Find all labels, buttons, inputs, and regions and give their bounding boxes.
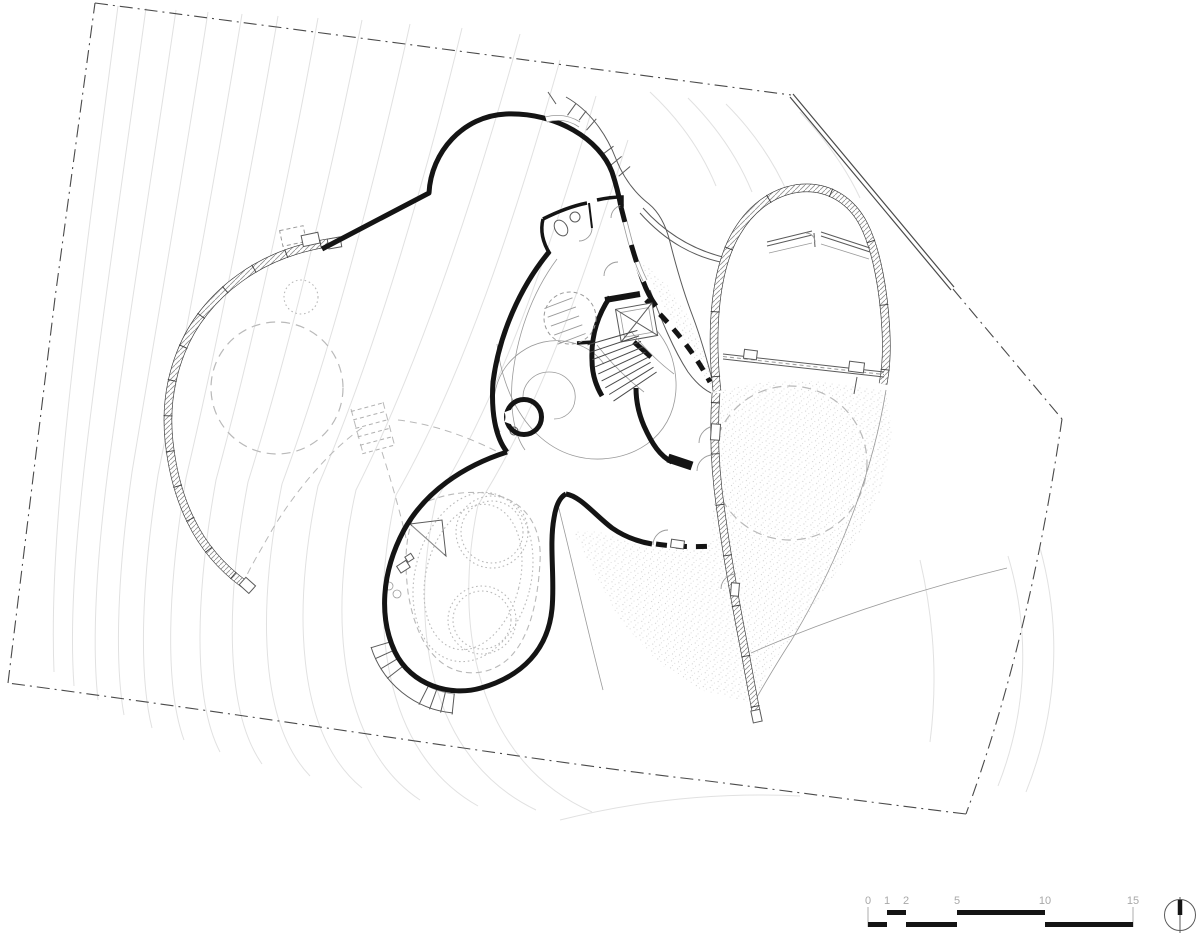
contour-line [726,104,788,194]
entry-walkway-edge [643,208,727,258]
corridor-edge [512,259,557,450]
bathroom-pod [542,197,622,254]
garden-stair-treads-ticks [351,403,393,454]
elevator-shaft [615,303,657,342]
contour-line [267,24,410,776]
toilet [551,218,570,239]
stair-core [544,292,674,401]
site-plan-drawing: 0 1 2 5 10 15 [0,0,1200,942]
scale-segment [957,910,1045,915]
pod-partition [589,203,592,228]
contour-line [688,98,752,192]
spiral-column-gap [508,411,509,423]
door-leaf [730,583,739,597]
scale-segment [868,922,887,927]
scale-label: 2 [903,895,909,907]
sink [570,212,580,222]
contour-line [425,96,596,810]
scale-segment [1045,922,1133,927]
boundary-northeast [953,289,1062,419]
tick-line [544,298,572,309]
contour-line [200,18,318,752]
tick-line [355,420,386,428]
skylight-dashed-circle [544,292,596,344]
skylight-hatch-ticks [544,298,585,344]
boundary-west [8,3,95,683]
tick-line [351,403,382,411]
north-arrow-icon [1165,897,1196,933]
pool-circle-dotted [453,591,511,649]
tree-small-dotted [284,280,318,314]
scale-label: 1 [884,895,890,907]
boundary-north [95,3,791,95]
glass-wall-dashed-south [656,544,714,547]
tick-line [609,367,653,394]
courtyard-balustrade [769,243,812,253]
contour-line [920,560,934,742]
scale-label: 10 [1039,895,1051,907]
pool-equipment [393,590,401,598]
core-top-wall [605,294,640,300]
tick-line [360,437,391,445]
tick-line [567,103,576,115]
pod-wall [542,219,550,254]
courtyard-wall-upper-right [821,236,870,252]
pool-lobe-outline [385,452,566,691]
tick-line [711,403,720,404]
tick-line [353,412,384,420]
boundary-east [966,419,1062,814]
courtyard-wall-upper-right [821,232,870,248]
tick-line [548,307,576,317]
fan-stair-outer-arc [371,647,453,713]
scale-label: 15 [1127,895,1139,907]
entry-walkway-edge [640,213,725,263]
door-swing-arc [604,262,618,276]
pool-circle-dotted [448,586,516,654]
wall-end-cap [751,709,762,723]
tick-line [587,119,597,130]
scale-label: 5 [954,895,960,907]
door-swing-arc [697,455,713,471]
contour-line [650,92,716,186]
courtyard-interior [723,231,884,394]
scale-segment [906,922,957,927]
door-leaf [671,539,685,549]
retaining-wall-west [164,226,342,594]
scale-segment [887,910,906,915]
garden-stair-treads [366,406,378,451]
garden-path-dashed [398,420,498,452]
contour-line [53,6,118,672]
curved-wall-east [636,388,672,462]
tick-line [590,336,639,352]
retaining-wall-west-band-ticks [164,240,322,579]
pool-inner-dotted [409,494,536,660]
contour-line [143,14,242,728]
contour-line [95,10,176,700]
door-swing-arc [579,228,592,241]
garden-path-dashed [382,452,406,538]
contour-line [469,140,628,812]
tick-line [554,325,582,335]
scale-label: 0 [865,895,871,907]
contour-line [1026,548,1054,792]
scale-bar: 0 1 2 5 10 15 [865,895,1139,927]
contour-line [171,16,278,740]
contour-line [118,12,208,715]
boundary-south [8,683,966,814]
contour-lines [53,6,1054,820]
wall-foot [668,458,692,466]
site-plan-sheet: 0 1 2 5 10 15 [0,0,1200,942]
tick-line [362,446,393,454]
door-leaf [710,424,720,441]
boundary-road-double-line [790,97,951,290]
straight-wall-and-upper-lobe [322,114,621,249]
pool-circle-dotted [456,496,528,568]
tree-canopy-dashed [211,322,343,454]
contour-line [72,8,146,686]
courtyard-balustrade [821,244,869,259]
pool-terrace [385,480,550,675]
ramp-slope-line [412,526,444,554]
wall-pier [743,349,757,360]
spiral-arc [523,372,575,419]
wall-pier [848,361,864,373]
contour-line [560,795,800,820]
